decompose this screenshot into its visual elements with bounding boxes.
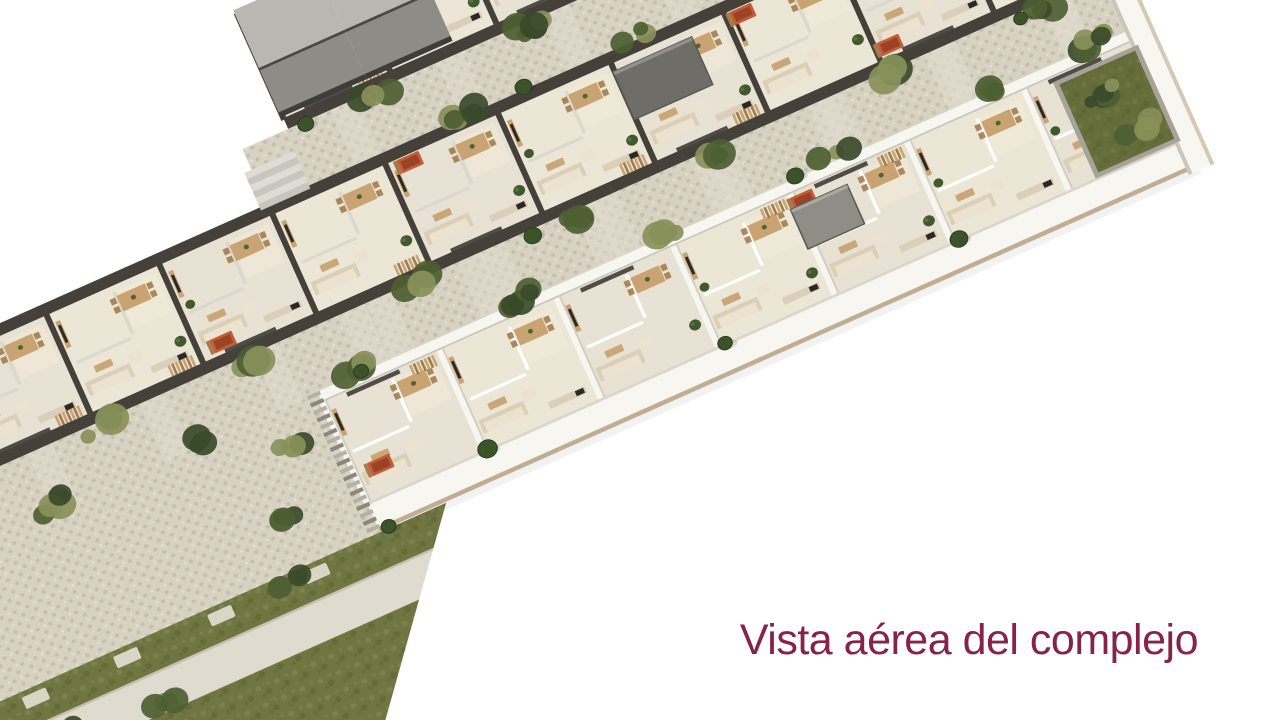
aerial-render [0, 0, 1280, 720]
slide: Vista aérea del complejo [0, 0, 1280, 720]
complex-3d-model [0, 0, 1280, 720]
page-title: Vista aérea del complejo [740, 616, 1198, 665]
